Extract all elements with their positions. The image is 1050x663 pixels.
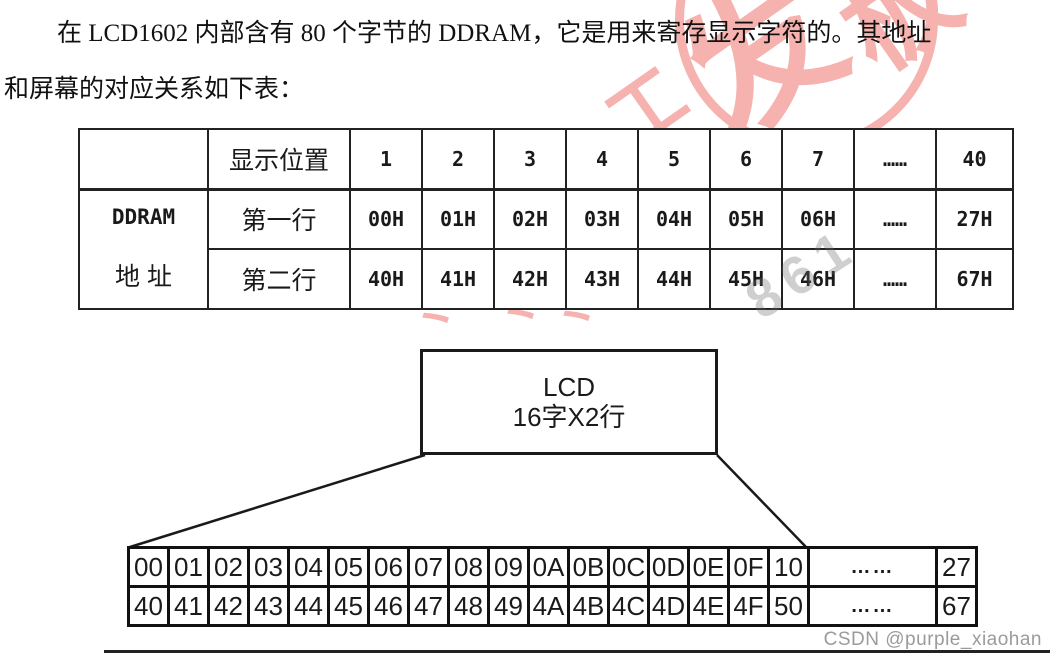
row2-label-cell: 第二行 (208, 249, 350, 309)
page: 发 板 工 丶 丶 丶 在 LCD1602 内部含有 80 个字节的 DDRAM… (0, 0, 1050, 663)
ddram-map-cell: 4A (529, 587, 569, 626)
ddram-map-cell: …… (809, 587, 937, 626)
ddram-map-cell: …… (809, 548, 937, 587)
ddram-map-cell: 03 (249, 548, 289, 587)
ddram-map-cell: 0A (529, 548, 569, 587)
position-cell: 2 (422, 129, 494, 189)
position-ellipsis-cell: …… (854, 129, 936, 189)
address-label: 地 址 (80, 257, 207, 293)
address-ellipsis-cell: …… (854, 189, 936, 249)
address-cell: 40H (350, 249, 422, 309)
address-cell: 03H (566, 189, 638, 249)
lcd-box-title: LCD (543, 372, 595, 402)
address-cell: 67H (936, 249, 1013, 309)
lcd-box-subtitle: 16字X2行 (513, 402, 626, 432)
map-row-1: 000102030405060708090A0B0C0D0E0F10……27 (129, 548, 977, 587)
left-connector-line (130, 455, 425, 547)
intro-paragraph: 在 LCD1602 内部含有 80 个字节的 DDRAM，它是用来寄存显示字符的… (4, 0, 1048, 118)
address-cell: 45H (710, 249, 782, 309)
ddram-map-cell: 67 (937, 587, 977, 626)
csdn-credit: CSDN @purple_xiaohan (824, 629, 1042, 651)
ddram-label: DDRAM (80, 205, 207, 229)
ddram-map-cell: 0D (649, 548, 689, 587)
ddram-map-cell: 45 (329, 587, 369, 626)
address-cell: 06H (782, 189, 854, 249)
ddram-map-cell: 46 (369, 587, 409, 626)
ddram-map-cell: 49 (489, 587, 529, 626)
address-cell: 27H (936, 189, 1013, 249)
position-cell: 4 (566, 129, 638, 189)
ddram-map-cell: 0C (609, 548, 649, 587)
position-cell: 6 (710, 129, 782, 189)
ddram-map-cell: 44 (289, 587, 329, 626)
address-cell: 00H (350, 189, 422, 249)
lcd-box: LCD 16字X2行 (420, 349, 718, 455)
position-cell: 3 (494, 129, 566, 189)
ddram-address-table: 显示位置 1 2 3 4 5 6 7 …… 40 DDRAM 地 址 第一行 0… (78, 128, 1014, 310)
row1-label-cell: 第一行 (208, 189, 350, 249)
position-cell: 1 (350, 129, 422, 189)
address-cell: 04H (638, 189, 710, 249)
address-cell: 41H (422, 249, 494, 309)
ddram-map-cell: 0B (569, 548, 609, 587)
corner-empty-cell (79, 129, 208, 189)
position-cell: 5 (638, 129, 710, 189)
paragraph-line-1: 在 LCD1602 内部含有 80 个字节的 DDRAM，它是用来寄存显示字符的… (4, 6, 1048, 62)
table-row-line1: DDRAM 地 址 第一行 00H 01H 02H 03H 04H 05H 06… (79, 189, 1013, 249)
address-cell: 44H (638, 249, 710, 309)
right-connector-line (717, 455, 806, 547)
row-group-label-cell: DDRAM 地 址 (79, 189, 208, 309)
position-header-cell: 显示位置 (208, 129, 350, 189)
ddram-map-cell: 00 (129, 548, 169, 587)
ddram-map-cell: 08 (449, 548, 489, 587)
table-header-row: 显示位置 1 2 3 4 5 6 7 …… 40 (79, 129, 1013, 189)
ddram-map-cell: 43 (249, 587, 289, 626)
ddram-map-cell: 4B (569, 587, 609, 626)
paragraph-line-2: 和屏幕的对应关系如下表： (4, 62, 1048, 118)
address-cell: 01H (422, 189, 494, 249)
ddram-map-cell: 42 (209, 587, 249, 626)
ddram-map-cell: 09 (489, 548, 529, 587)
row-group-label: DDRAM 地 址 (80, 191, 207, 307)
ddram-map-cell: 0F (729, 548, 769, 587)
ddram-map-cell: 4C (609, 587, 649, 626)
ddram-map-cell: 41 (169, 587, 209, 626)
ddram-map-cell: 07 (409, 548, 449, 587)
ddram-map-cell: 10 (769, 548, 809, 587)
position-cell: 40 (936, 129, 1013, 189)
ddram-map-cell: 04 (289, 548, 329, 587)
address-cell: 43H (566, 249, 638, 309)
address-cell: 05H (710, 189, 782, 249)
ddram-map-table: 000102030405060708090A0B0C0D0E0F10……27 4… (127, 546, 978, 627)
ddram-map-cell: 48 (449, 587, 489, 626)
ddram-map-cell: 05 (329, 548, 369, 587)
ddram-map-cell: 06 (369, 548, 409, 587)
ddram-map-cell: 4D (649, 587, 689, 626)
ddram-map-cell: 40 (129, 587, 169, 626)
table-row-line2: 第二行 40H 41H 42H 43H 44H 45H 46H …… 67H (79, 249, 1013, 309)
address-cell: 02H (494, 189, 566, 249)
ddram-map-cell: 02 (209, 548, 249, 587)
ddram-map-cell: 4F (729, 587, 769, 626)
ddram-map-cell: 27 (937, 548, 977, 587)
ddram-map-cell: 01 (169, 548, 209, 587)
map-row-2: 404142434445464748494A4B4C4D4E4F50……67 (129, 587, 977, 626)
ddram-map-cell: 4E (689, 587, 729, 626)
ddram-map-cell: 47 (409, 587, 449, 626)
address-ellipsis-cell: …… (854, 249, 936, 309)
position-cell: 7 (782, 129, 854, 189)
address-cell: 42H (494, 249, 566, 309)
address-cell: 46H (782, 249, 854, 309)
ddram-map-cell: 50 (769, 587, 809, 626)
ddram-map-cell: 0E (689, 548, 729, 587)
